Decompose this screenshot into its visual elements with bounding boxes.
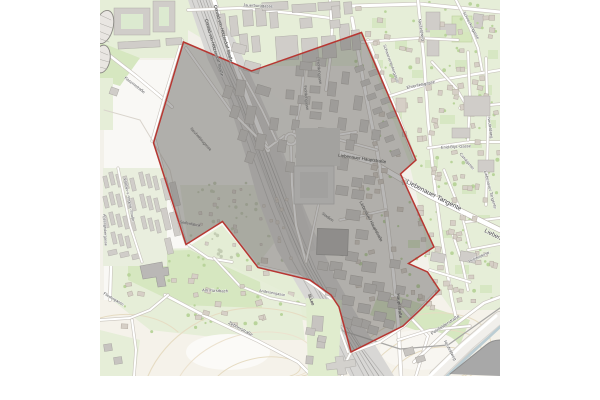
svg-text:Jauerburggasse: Jauerburggasse: [243, 2, 274, 8]
svg-text:Am Fürstbach: Am Fürstbach: [202, 288, 229, 294]
